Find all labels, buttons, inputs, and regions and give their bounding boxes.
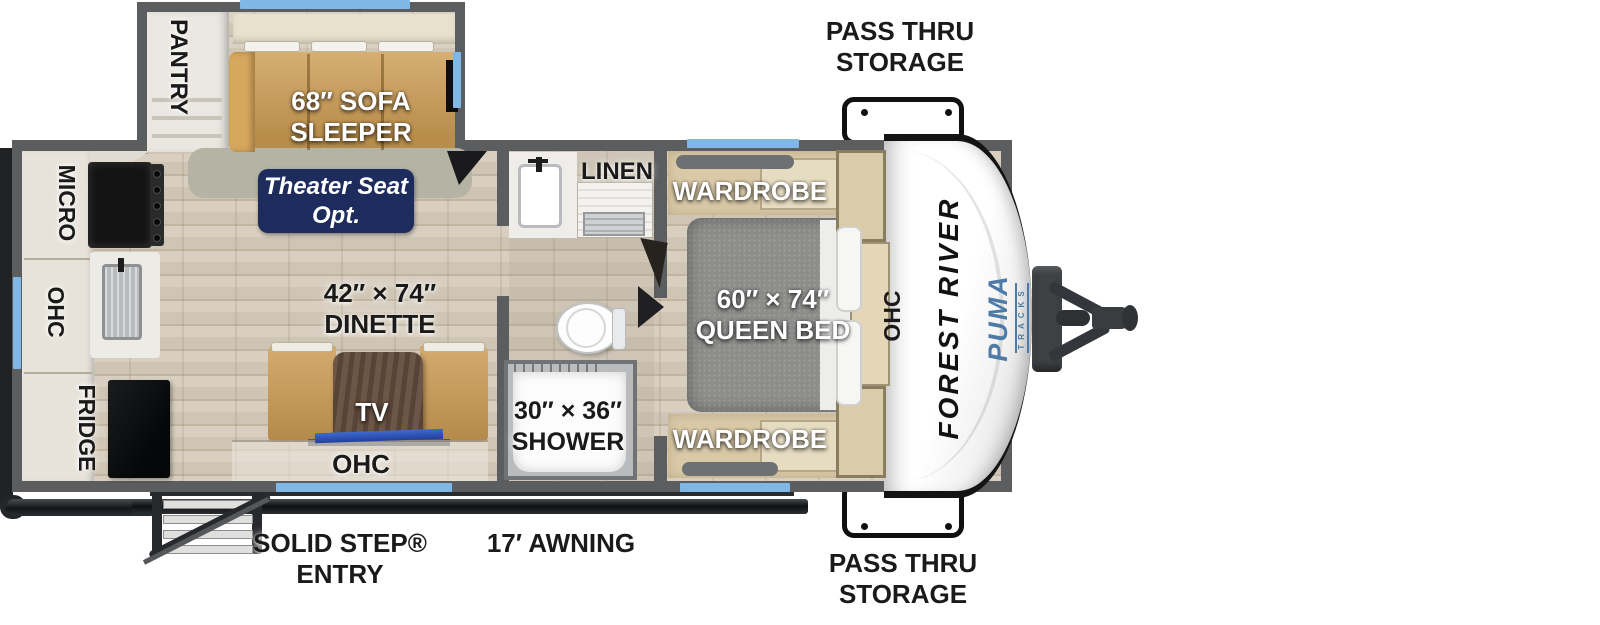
theater-line1: Theater Seat — [264, 173, 408, 200]
refrigerator — [108, 380, 170, 478]
bath-faucet-bar — [528, 159, 548, 163]
cabinet-divider — [24, 258, 92, 260]
bench-top-cap — [423, 342, 485, 352]
bed-size: 60″ × 74″ — [717, 284, 829, 314]
dinette-name: DINETTE — [324, 309, 435, 339]
hitch-ball-knob — [1122, 305, 1138, 331]
pantry-label: PANTRY — [162, 12, 192, 122]
range-knobs — [150, 164, 164, 246]
pass-thru-bottom-label: PASS THRU STORAGE — [803, 548, 1003, 610]
solid-step-line2: ENTRY — [296, 559, 383, 589]
linen-cabinet-front — [583, 212, 645, 236]
fridge-label: FRIDGE — [74, 376, 100, 480]
window-slide-top — [240, 0, 410, 9]
sofa-headrest — [244, 41, 300, 52]
solid-step-line1: SOLID STEP® — [253, 528, 427, 558]
jack-post — [1056, 310, 1090, 326]
bedroom-ohc-label: OHC — [879, 284, 901, 348]
bed-name: QUEEN BED — [696, 315, 851, 345]
window-bedroom-bottom — [680, 483, 790, 492]
floorplan-canvas: PANTRY 68″ SOFA SLEEPER Theater Seat Opt… — [0, 0, 1600, 625]
micro-label: MICRO — [54, 155, 80, 251]
pantry-shelf — [152, 134, 222, 138]
kitchen-sink — [102, 264, 142, 340]
cabinet-divider — [24, 372, 92, 374]
pass-thru-bottom-line2: STORAGE — [839, 579, 967, 609]
toilet-tank — [612, 308, 626, 350]
awning-label: 17′ AWNING — [461, 528, 661, 559]
bath-wall — [497, 150, 509, 226]
sofa-headrest — [378, 41, 434, 52]
shower-label: 30″ × 36″ SHOWER — [498, 396, 638, 458]
theater-seat-option-badge: Theater Seat Opt. — [258, 169, 414, 233]
range-cooktop — [88, 162, 152, 248]
slider-track-top — [676, 155, 794, 169]
latch-dot — [945, 109, 952, 116]
dinette-label: 42″ × 74″ DINETTE — [280, 278, 480, 340]
theater-line2: Opt. — [312, 202, 360, 229]
sofa-label-line1: 68″ SOFA — [291, 86, 410, 116]
bed-label: 60″ × 74″ QUEEN BED — [673, 284, 873, 346]
tracks-logo-text: TRACKS — [1015, 283, 1029, 352]
kitchen-faucet — [118, 258, 124, 272]
burner-knob — [153, 218, 161, 226]
latch-dot — [945, 523, 952, 530]
sofa-headrest — [311, 41, 367, 52]
window-bedroom-top — [687, 139, 799, 148]
slider-track-bottom — [682, 462, 778, 476]
shower-size: 30″ × 36″ — [514, 397, 622, 425]
burner-knob — [153, 186, 161, 194]
window-dinette — [276, 483, 452, 492]
sofa-label: 68″ SOFA SLEEPER — [251, 86, 451, 148]
burner-knob — [153, 234, 161, 242]
pass-thru-top-line2: STORAGE — [836, 47, 964, 77]
dinette-size: 42″ × 74″ — [324, 278, 436, 308]
window-rear — [13, 277, 21, 369]
shower-name: SHOWER — [512, 428, 625, 456]
wardrobe-bottom-label: WARDROBE — [650, 424, 850, 455]
bench-top-cap — [271, 342, 333, 352]
kitchen-ohc-label: OHC — [45, 276, 69, 348]
sofa-backrest — [233, 14, 455, 44]
latch-dot — [861, 523, 868, 530]
pass-thru-top-line1: PASS THRU — [826, 16, 974, 46]
pass-thru-top-label: PASS THRU STORAGE — [800, 16, 1000, 78]
latch-dot — [861, 109, 868, 116]
toilet-seat — [566, 308, 606, 348]
dinette-bench-right — [420, 346, 488, 442]
awning-rail — [150, 492, 794, 496]
burner-knob — [153, 202, 161, 210]
puma-tracks-logo: PUMA TRACKS — [985, 258, 1031, 378]
window-slide-side — [453, 52, 461, 108]
tv-label: TV — [342, 397, 402, 428]
puma-logo-text: PUMA — [985, 258, 1011, 378]
burner-knob — [153, 170, 161, 178]
sofa-label-line2: SLEEPER — [290, 117, 411, 147]
pass-thru-bottom-line1: PASS THRU — [829, 548, 977, 578]
forest-river-logo: FOREST RIVER — [933, 173, 967, 463]
dinette-ohc-label: OHC — [321, 449, 401, 480]
solid-step-entry-label: SOLID STEP® ENTRY — [240, 528, 440, 590]
dinette-bench-left — [268, 346, 336, 442]
shower-door-track — [514, 364, 600, 372]
linen-label: LINEN — [547, 158, 687, 186]
